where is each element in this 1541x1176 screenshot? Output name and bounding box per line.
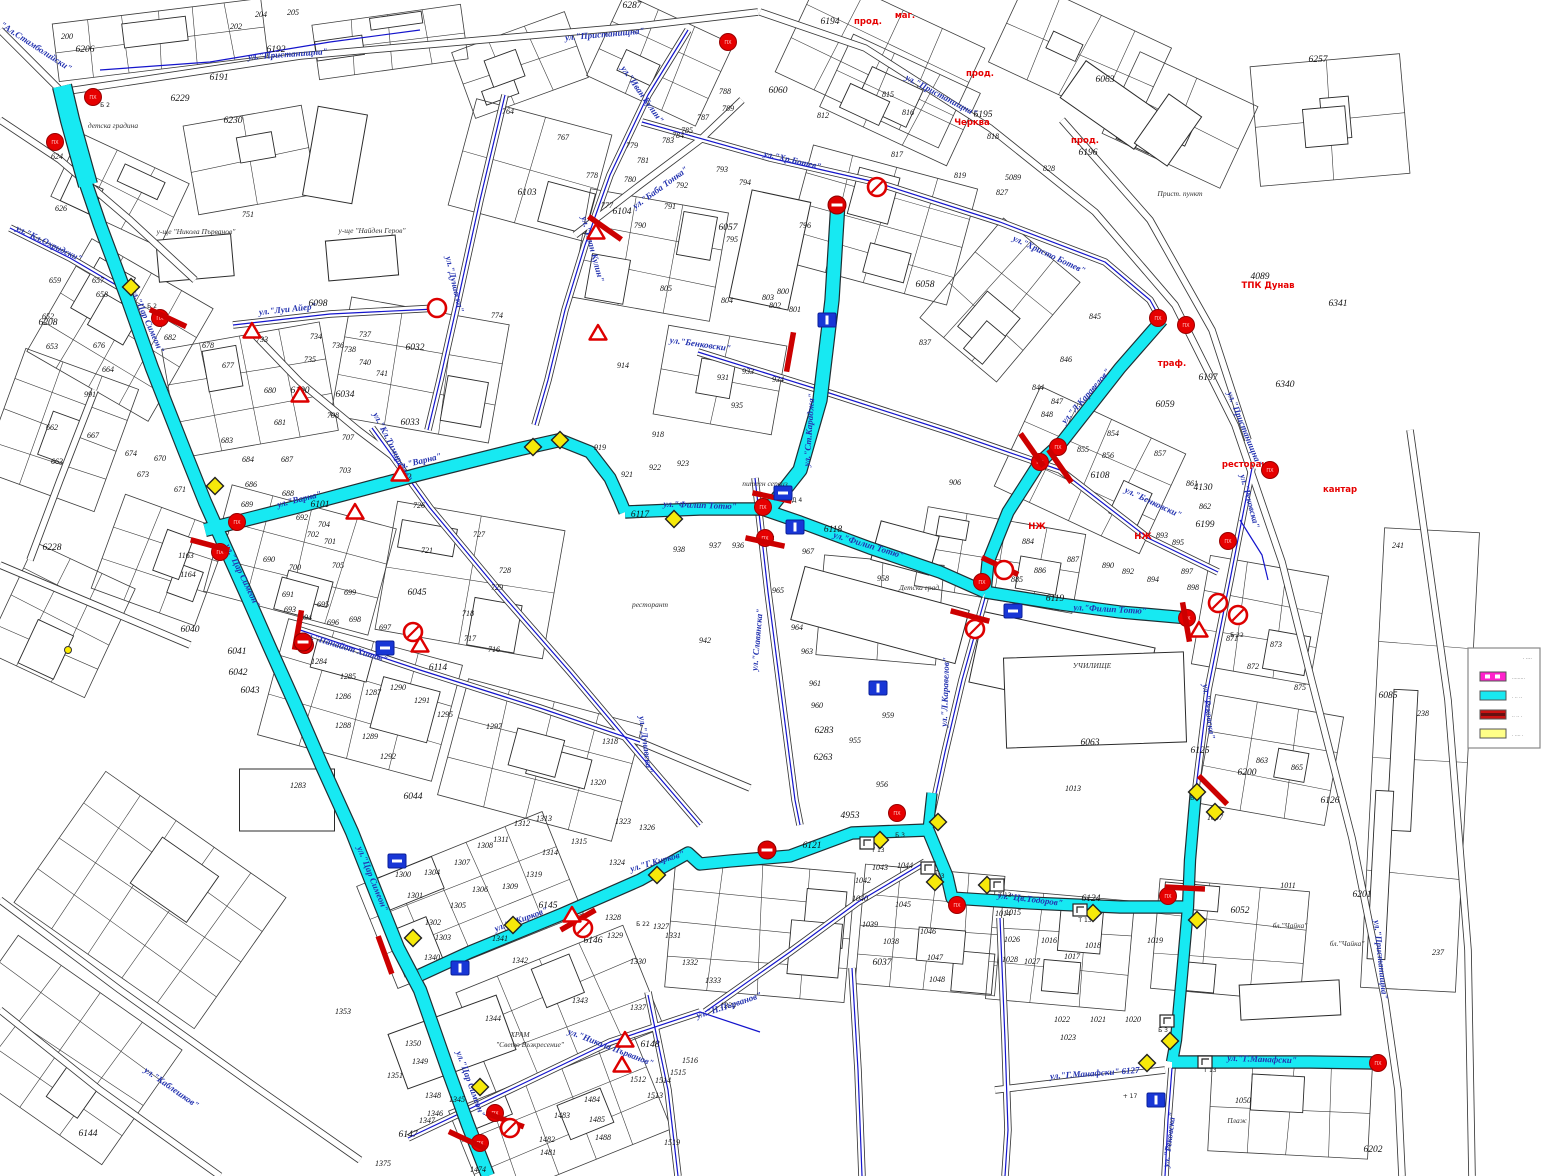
annotation-label: Б 22: [1230, 632, 1244, 639]
city-map-svg: 2002022042056246267519911163116465265365…: [0, 0, 1541, 1176]
parcel-number: 659: [49, 276, 61, 285]
parcel-number: 778: [586, 171, 598, 180]
parcel-number: 1019: [1147, 936, 1163, 945]
street-name: ул."Хр.Ботев": [762, 148, 822, 171]
parcel-number: 1353: [335, 1007, 351, 1016]
parcel-number: 934: [772, 375, 784, 384]
prohibition-sign-icon: [428, 299, 446, 317]
parcel-number: 1337: [630, 1003, 647, 1012]
block-number: 6101: [311, 500, 330, 510]
yield-sign-icon: [590, 325, 607, 340]
parcel-number: 5089: [1005, 173, 1021, 182]
parcel-number: 1311: [493, 835, 508, 844]
parcel-number: 938: [673, 545, 685, 554]
parcel-number: 683: [221, 436, 233, 445]
parcel-number: 937: [709, 541, 722, 550]
hydrant-label: ПХ: [953, 903, 961, 909]
parcel-number: 1164: [180, 570, 195, 579]
street-name: ул."Каблешков": [142, 1064, 201, 1110]
block-number: 6191: [210, 73, 229, 83]
fire-hydrant-icon: ПХ: [85, 89, 102, 106]
parcel-number: 857: [1154, 449, 1167, 458]
marker-box-icon: [1198, 1056, 1212, 1068]
parcel-number: 1285: [340, 672, 356, 681]
parcel-number: 1304: [424, 868, 440, 877]
parcel-number: 205: [287, 8, 299, 17]
parcel-number: 789: [722, 104, 734, 113]
parcel-number: 693: [284, 605, 296, 614]
block-number: 6063: [1096, 75, 1115, 85]
parcel-number: 942: [699, 636, 711, 645]
block-number: 6126: [1321, 796, 1340, 806]
parcel-number: 1324: [609, 858, 625, 867]
parcel-number: 790: [634, 221, 646, 230]
block-number: 6104: [613, 207, 632, 217]
block-number: 6057: [719, 223, 739, 233]
parcel-number: 1017: [1064, 952, 1081, 961]
block-number: 6114: [429, 663, 448, 673]
map-canvas[interactable]: 2002022042056246267519911163116465265365…: [0, 0, 1541, 1176]
parcel-number: 961: [809, 679, 821, 688]
parcel-number: 1295: [437, 710, 453, 719]
parcel-number: 1481: [540, 1148, 556, 1157]
block-number: 6085: [1379, 691, 1398, 701]
prohibition-sign-icon: [966, 620, 984, 638]
parcel-number: 670: [154, 454, 166, 463]
parcel-number: 1303: [435, 933, 451, 942]
parcel-number: 681: [274, 418, 286, 427]
parcel-number: 1040: [852, 894, 868, 903]
parcel-number: 956: [876, 780, 888, 789]
parcel-number: 1483: [554, 1111, 570, 1120]
poi-label: Прист. пункт: [1156, 189, 1203, 198]
parcel-block: [331, 297, 509, 443]
parcel-number: 764: [502, 107, 514, 116]
parcel-number: 1289: [362, 732, 378, 741]
info-sign-icon: [376, 641, 394, 655]
parcel-number: 855: [1077, 445, 1089, 454]
parcel-number: 886: [1034, 566, 1046, 575]
parcel-number: 1301: [407, 891, 423, 900]
no-entry-icon: [294, 633, 312, 651]
parcel-number: 774: [491, 311, 503, 320]
block-number: 6341: [1329, 299, 1348, 309]
parcel-block: [665, 857, 856, 1002]
hydrant-label: ПХ: [759, 505, 767, 511]
parcel-number: 1347: [419, 1116, 436, 1125]
parcel-number: 1042: [855, 876, 871, 885]
fire-hydrant-icon: ПХ: [1220, 533, 1237, 550]
parcel-number: 734: [310, 332, 322, 341]
parcel-number: 791: [664, 202, 676, 211]
parcel-number: 705: [332, 561, 344, 570]
block-number: 6108: [1091, 471, 1110, 481]
parcel-number: 718: [462, 609, 474, 618]
parcel-number: 1302: [425, 918, 441, 927]
hydrant-label: ПХ: [51, 140, 59, 146]
parcel-number: 1028: [1002, 955, 1018, 964]
parcel-number: 1305: [450, 901, 466, 910]
parcel-number: 687: [281, 455, 294, 464]
parcel-number: 767: [557, 133, 570, 142]
block-number: 6119: [1046, 594, 1065, 604]
parcel-number: 1044: [897, 861, 913, 870]
hydrant-label: ПХ: [1154, 316, 1162, 322]
parcel-number: 1341: [492, 934, 508, 943]
parcel-number: 728: [499, 566, 511, 575]
parcel-number: 1485: [589, 1115, 605, 1124]
parcel-number: 699: [344, 588, 356, 597]
annotation-label: Б 2: [100, 102, 110, 109]
parcel-number: 802: [769, 301, 781, 310]
block-number: 6033: [401, 418, 420, 428]
block-number: 6148: [641, 1040, 660, 1050]
parcel-number: 658: [96, 290, 108, 299]
parcel-number: 726: [413, 501, 425, 510]
prohibition-sign-icon: [501, 1119, 519, 1137]
block-number: 6202: [1364, 1145, 1383, 1155]
parcel-number: 1331: [665, 931, 681, 940]
hydrant-label: ПХ: [1182, 323, 1190, 329]
parcel-number: 800: [777, 287, 789, 296]
parcel-number: 872: [1247, 662, 1259, 671]
parcel-number: 1026: [1004, 935, 1020, 944]
annotation-label: + 17: [1123, 1093, 1138, 1100]
block-number: 6263: [814, 753, 833, 763]
block-number: 6058: [916, 280, 935, 290]
parcel-number: 1314: [542, 848, 558, 857]
parcel-number: 663: [51, 457, 63, 466]
parcel-number: 1013: [1065, 784, 1081, 793]
parcel-number: 960: [811, 701, 823, 710]
annotation-label: Б 3: [1158, 1027, 1168, 1034]
parcel-number: 1020: [1125, 1015, 1141, 1024]
parcel-number: 1312: [514, 819, 530, 828]
parcel-number: 935: [731, 401, 743, 410]
parcel-number: 845: [1089, 312, 1101, 321]
block-number: 6257: [1309, 55, 1329, 65]
fire-hydrant-icon: ПХ: [949, 897, 966, 914]
info-sign-icon: [818, 313, 836, 327]
block-number: 6144: [79, 1129, 98, 1139]
parcel-number: 1513: [647, 1091, 663, 1100]
hydrant-label: ПХ: [1374, 1061, 1382, 1067]
info-sign-icon: [1004, 604, 1022, 618]
parcel-number: 1333: [705, 976, 721, 985]
hydrant-label: ПХ: [893, 811, 901, 817]
parcel-number: 793: [716, 165, 728, 174]
parcel-number: 703: [339, 466, 351, 475]
parcel-number: 922: [649, 463, 661, 472]
parcel-number: 815: [882, 90, 894, 99]
parcel-number: 692: [296, 513, 308, 522]
parcel-number: 895: [1172, 538, 1184, 547]
red-poi-label: траф.: [1158, 359, 1186, 369]
parcel-number: 892: [1122, 567, 1134, 576]
parcel-number: 785: [681, 126, 693, 135]
parcel-number: 1313: [536, 814, 552, 823]
parcel-number: 1514: [655, 1076, 671, 1085]
parcel-number: 686: [245, 480, 257, 489]
prohibition-sign-icon: [1209, 594, 1227, 612]
block-number: 6037: [873, 958, 893, 968]
fire-hydrant-icon: ПХ: [229, 514, 246, 531]
block-number: 6117: [631, 510, 651, 520]
block-number: 6194: [821, 17, 840, 27]
parcel-number: 1039: [862, 920, 878, 929]
parcel-number: 657: [92, 276, 105, 285]
parcel-number: 875: [1294, 683, 1306, 692]
block-number: 6340: [1276, 380, 1295, 390]
parcel-number: 708: [327, 411, 339, 420]
info-sign-icon: [869, 681, 887, 695]
block-number: 6199: [1196, 520, 1215, 530]
parcel-number: 677: [222, 361, 235, 370]
parcel-number: 794: [739, 178, 751, 187]
legend-label: ·· ·· ·: [1512, 715, 1522, 720]
parcel-number: 653: [46, 342, 58, 351]
parcel-number: 906: [949, 478, 961, 487]
yield-sign-icon: [614, 1057, 631, 1072]
parcel-number: 848: [1041, 410, 1053, 419]
parcel-number: 735: [304, 355, 316, 364]
parcel-number: 736: [332, 341, 344, 350]
block-number: 6034: [336, 390, 355, 400]
parcel-number: 1349: [412, 1057, 428, 1066]
red-poi-label: кантар: [1323, 485, 1357, 495]
parcel-number: 804: [721, 296, 733, 305]
parcel-number: 1309: [502, 882, 518, 891]
parcel-number: 1290: [390, 683, 406, 692]
marker-box-icon: [860, 837, 874, 849]
info-sign-icon: [1147, 1093, 1165, 1107]
block-number: 6052: [1231, 906, 1250, 916]
block-number: 6208: [39, 318, 58, 328]
block-number: 6045: [408, 588, 427, 598]
parcel-number: 844: [1032, 383, 1044, 392]
parcel-number: 237: [1432, 948, 1445, 957]
parcel-number: 1474: [470, 1165, 486, 1174]
parcel-number: 200: [61, 32, 73, 41]
parcel-number: 1343: [572, 996, 588, 1005]
parcel-number: 664: [102, 365, 114, 374]
parcel-number: 697: [379, 623, 392, 632]
parcel-number: 737: [359, 330, 372, 339]
poi-label: Плаж: [1226, 1116, 1247, 1125]
yield-sign-icon: [347, 504, 364, 519]
parcel-number: 936: [732, 541, 744, 550]
block-number: 6060: [769, 86, 788, 96]
red-poi-label: прод.: [966, 69, 994, 79]
fire-hydrant-icon: ПХ: [889, 805, 906, 822]
parcel-number: 796: [799, 221, 811, 230]
parcel-number: 964: [791, 623, 803, 632]
poi-label: бл."Чайка": [1330, 939, 1366, 948]
parcel-number: 865: [1291, 763, 1303, 772]
block-number: 4953: [841, 811, 860, 821]
parcel-number: 967: [802, 547, 815, 556]
parcel-number: 854: [1107, 429, 1119, 438]
parcel-block: [0, 348, 139, 511]
parcel-number: 1484: [584, 1095, 600, 1104]
parcel-number: 894: [1147, 575, 1159, 584]
block-number: 4130: [1194, 483, 1213, 493]
block-number: 6200: [1238, 768, 1257, 778]
parcel-number: 1018: [1085, 941, 1101, 950]
block-number: 6283: [815, 726, 834, 736]
block-number: 6043: [241, 686, 260, 696]
parcel-block: [452, 12, 589, 119]
parcel-number: 1300: [395, 870, 411, 879]
poi-label: УЧИЛИЩЕ: [1073, 661, 1112, 670]
block-number: 6201: [1353, 890, 1372, 900]
prohibition-sign-icon: [995, 561, 1013, 579]
poi-label: "Свето Възкресение": [496, 1040, 565, 1049]
legend-label: ·········: [1512, 677, 1525, 682]
parcel-number: 241: [1392, 541, 1404, 550]
fire-hydrant-icon: ПХ: [47, 134, 64, 151]
poi-label: бл."Чайка": [1273, 921, 1309, 930]
parcel-number: 678: [202, 341, 214, 350]
parcel-number: 1340: [424, 953, 440, 962]
hydrant-label: ПХ: [1224, 539, 1232, 545]
parcel-number: 780: [624, 175, 636, 184]
parcel-number: 1291: [414, 696, 430, 705]
parcel-number: 1286: [335, 692, 351, 701]
parcel-number: 1516: [682, 1056, 698, 1065]
parcel-number: 884: [1022, 537, 1034, 546]
poi-label: ресторант: [631, 600, 669, 609]
parcel-number: 727: [473, 530, 486, 539]
marker-box-icon: [921, 862, 935, 874]
street-name: ул."Славянска": [749, 608, 764, 672]
parcel-number: 897: [1181, 567, 1194, 576]
parcel-number: 1043: [872, 863, 888, 872]
parcel-number: 624: [51, 152, 63, 161]
parcel-number: 676: [93, 341, 105, 350]
hydrant-label: ПХ: [89, 95, 97, 101]
utility-dot-icon: [65, 647, 72, 654]
block-number: 6197: [1199, 373, 1219, 383]
hydrant-label: ПХ: [233, 520, 241, 526]
parcel-number: 827: [996, 188, 1009, 197]
parcel-number: 689: [241, 500, 253, 509]
parcel-number: 918: [652, 430, 664, 439]
parcel-number: 1330: [630, 957, 646, 966]
fire-hydrant-icon: ПХ: [720, 34, 737, 51]
parcel-number: 914: [617, 361, 629, 370]
parcel-number: 1163: [178, 551, 193, 560]
parcel-number: 1047: [927, 953, 944, 962]
marker-box-icon: [990, 879, 1004, 891]
block-number: 6032: [406, 343, 425, 353]
parcel-block: [0, 542, 135, 697]
parcel-number: 729: [491, 583, 503, 592]
parcel-number: 1315: [571, 837, 587, 846]
parcel-number: 803: [762, 293, 774, 302]
parcel-number: 873: [1270, 640, 1282, 649]
annotation-label: Б 22: [636, 921, 650, 928]
parcel-number: 1048: [929, 975, 945, 984]
valve-icon: [1165, 887, 1205, 889]
parcel-number: 862: [1199, 502, 1211, 511]
parcel-number: 707: [342, 433, 355, 442]
red-poi-label: НЖ: [1028, 522, 1046, 532]
parcel-number: 991: [84, 390, 96, 399]
red-poi-label: НЖ: [1134, 532, 1152, 542]
poi-label: Детска град.: [898, 583, 941, 592]
prohibition-sign-icon: [1229, 606, 1247, 624]
buildings: [156, 61, 1341, 1089]
legend-label: · ···· ·: [1512, 734, 1523, 739]
block-number: 6287: [623, 1, 643, 11]
parcel-number: 698: [349, 615, 361, 624]
parcel-number: 805: [660, 284, 672, 293]
parcel-number: 1318: [602, 737, 618, 746]
info-sign-icon: [774, 486, 792, 500]
parcel-number: 700: [289, 563, 301, 572]
info-sign-icon: [786, 520, 804, 534]
marker-box-icon: [1073, 904, 1087, 916]
parcel-number: 1021: [1090, 1015, 1106, 1024]
parcel-number: 751: [242, 210, 254, 219]
poi-label: у-ще "Найден Геров": [337, 226, 406, 235]
parcel-number: 816: [902, 108, 914, 117]
parcel-number: 667: [87, 431, 100, 440]
block-number: 6063: [1081, 738, 1100, 748]
poi-label: ХРАМ: [509, 1030, 530, 1039]
parcel-number: 1027: [1024, 957, 1041, 966]
parcel-number: 887: [1067, 555, 1080, 564]
prohibition-sign-icon: [868, 178, 886, 196]
hydrant-label: ПХ: [724, 40, 732, 46]
parcel-number: 1488: [595, 1133, 611, 1142]
parcel-number: 1329: [607, 931, 623, 940]
legend: · ·············· ·· ···· ·· ·· ···· ·: [1468, 648, 1540, 748]
parcel-number: 238: [1417, 709, 1429, 718]
parcel-number: 740: [359, 358, 371, 367]
parcel-number: 671: [174, 485, 186, 494]
block-number: 6206: [76, 45, 95, 55]
block-number: 6121: [803, 841, 822, 851]
parcel-block: [1250, 54, 1410, 187]
parcel-number: 828: [1043, 164, 1055, 173]
parcel-number: 818: [987, 132, 999, 141]
block-number: 6041: [228, 647, 247, 657]
marker-box-icon: [1160, 1015, 1174, 1027]
parcel-number: 1283: [290, 781, 306, 790]
parcel-number: 931: [717, 373, 729, 382]
parcel-number: 1482: [539, 1135, 555, 1144]
parcel-number: 721: [421, 546, 433, 555]
parcel-number: 1050: [1235, 1096, 1251, 1105]
parcel-number: 716: [488, 645, 500, 654]
parcel-number: 1038: [883, 937, 899, 946]
parcel-block: [183, 105, 317, 214]
fire-hydrant-icon: ПХ: [1150, 310, 1167, 327]
poi-label: детска градина: [88, 121, 138, 130]
parcel-number: 965: [772, 586, 784, 595]
parcel-number: 1326: [639, 823, 655, 832]
fire-hydrant-icon: ПХ: [974, 574, 991, 591]
parcel-number: 1350: [405, 1039, 421, 1048]
parcel-number: 1327: [653, 922, 670, 931]
parcel-number: 1328: [605, 913, 621, 922]
legend-title: · ····: [1522, 656, 1532, 662]
block-number: 6125: [1191, 746, 1210, 756]
parcel-number: 1287: [365, 688, 382, 697]
parcel-number: 1022: [1054, 1015, 1070, 1024]
